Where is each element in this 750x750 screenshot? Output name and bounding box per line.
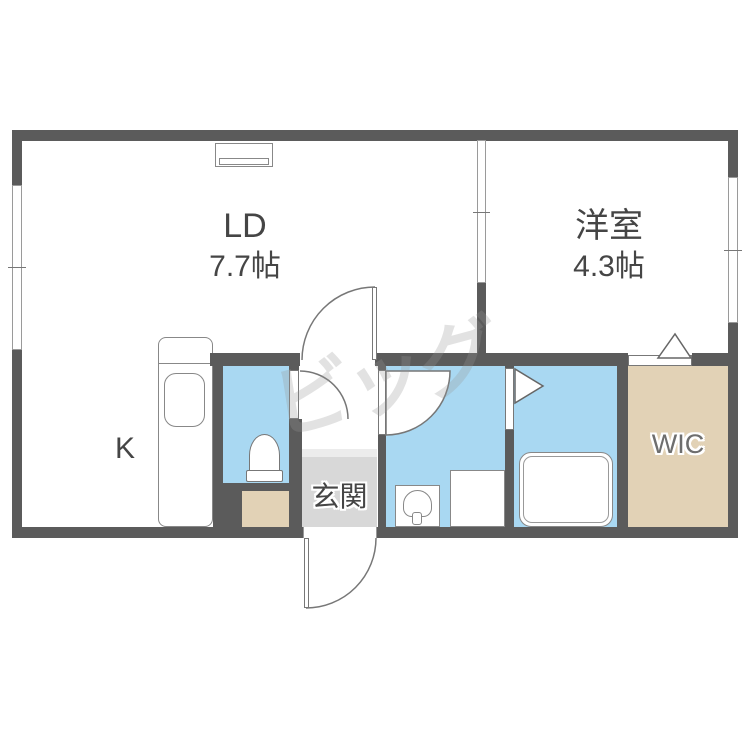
youshitsu-room-size: 4.3帖: [524, 248, 694, 286]
kitchen-label: K: [100, 430, 150, 468]
genkan-label: 玄関: [297, 479, 382, 514]
ld-room-label: LD 7.7帖: [160, 205, 330, 285]
wic-label: WIC: [638, 428, 718, 462]
ld-room-name: LD: [160, 205, 330, 248]
wic-door-icon: [658, 334, 691, 358]
youshitsu-room-label: 洋室 4.3帖: [524, 205, 694, 285]
ld-room-size: 7.7帖: [160, 248, 330, 286]
entry-door-swing-arc: [306, 538, 376, 608]
youshitsu-room-name: 洋室: [524, 205, 694, 248]
floor-plan: ビッグ LD 7.7帖 洋室 4.3帖 K 玄関 WIC: [0, 0, 750, 750]
